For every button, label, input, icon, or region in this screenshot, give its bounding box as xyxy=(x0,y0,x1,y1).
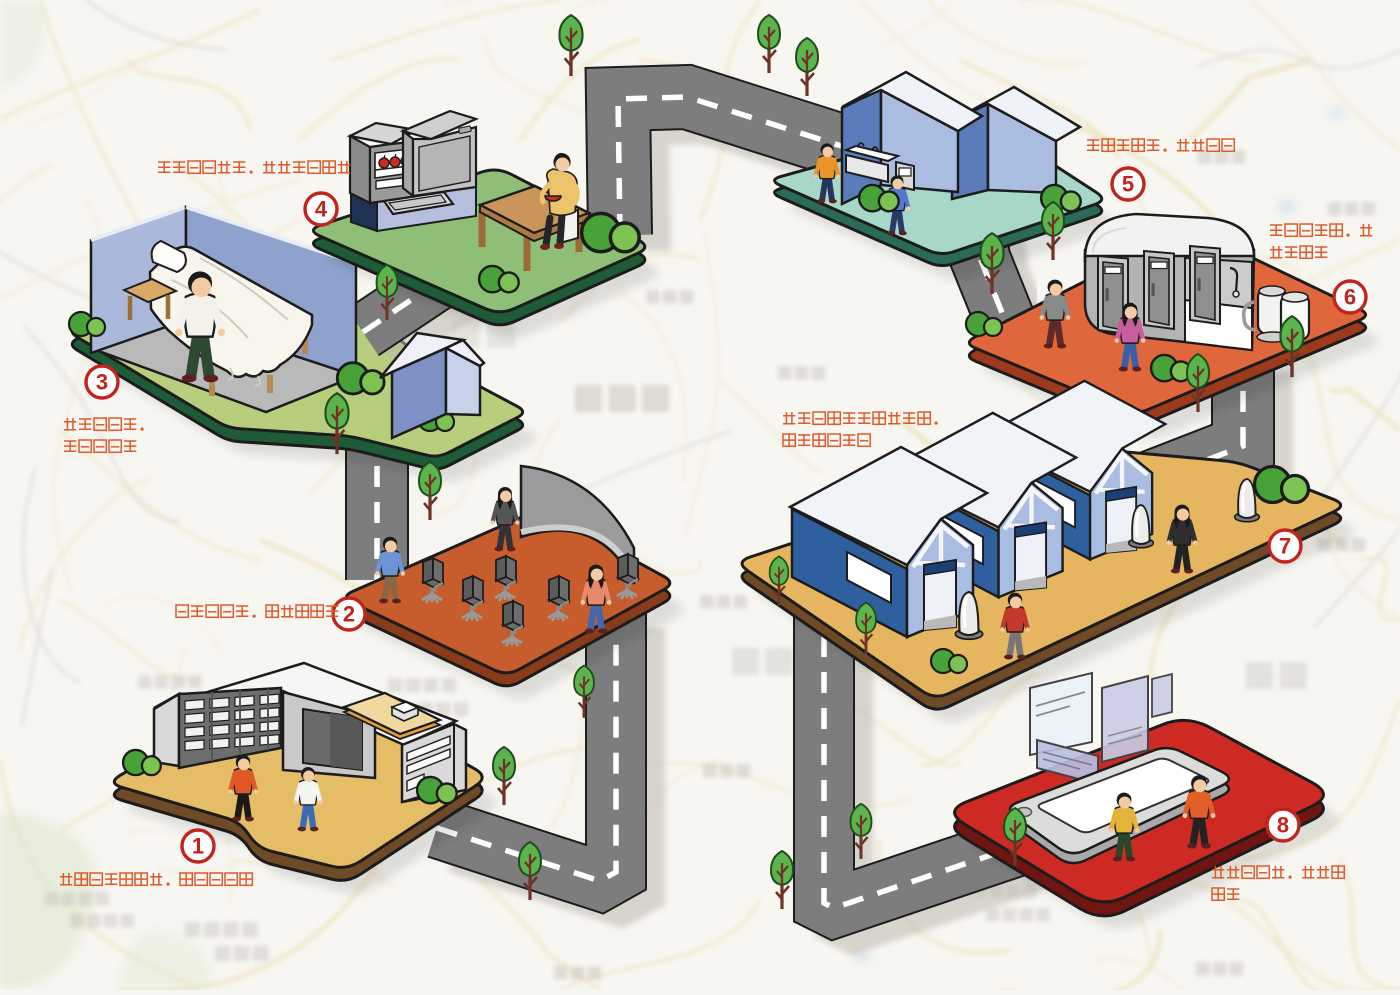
svg-text:4: 4 xyxy=(315,197,328,222)
svg-text:7: 7 xyxy=(1279,534,1291,559)
svg-text:8: 8 xyxy=(1277,813,1289,838)
svg-text:1: 1 xyxy=(192,834,204,859)
svg-text:2: 2 xyxy=(343,602,355,627)
svg-text:3: 3 xyxy=(96,370,108,395)
svg-text:5: 5 xyxy=(1122,172,1134,197)
svg-text:6: 6 xyxy=(1344,285,1356,310)
